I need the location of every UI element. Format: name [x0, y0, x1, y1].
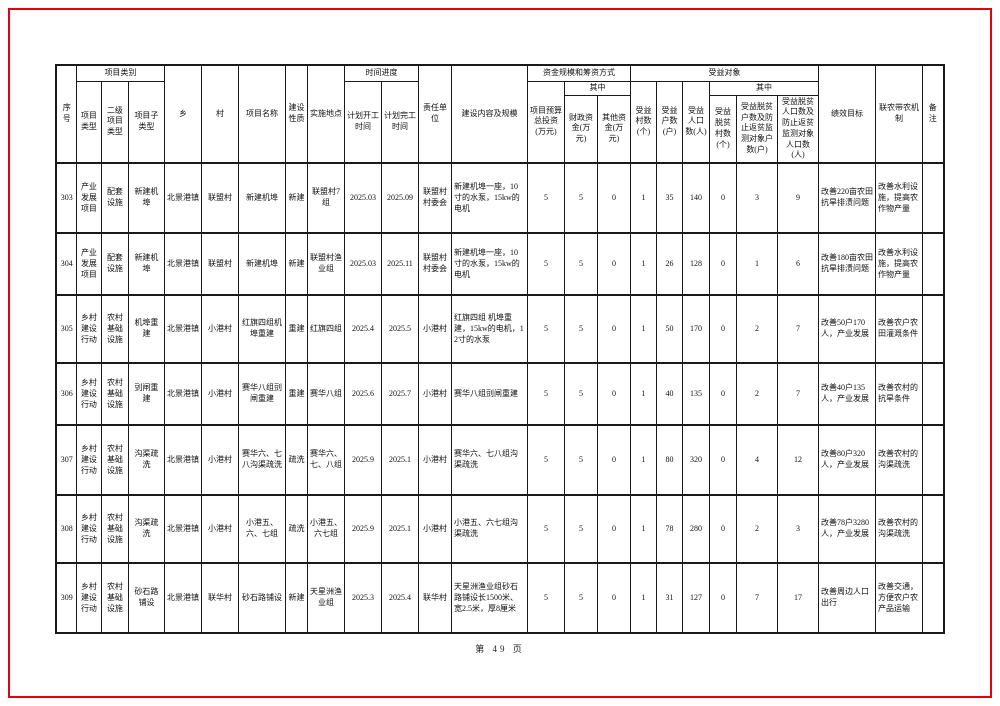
- table-cell: 北景港镇: [164, 425, 201, 495]
- table-cell: [923, 495, 944, 563]
- table-cell: 联盟村渔业组: [307, 233, 344, 295]
- table-cell: 304: [56, 233, 76, 295]
- table-cell: 5: [527, 425, 564, 495]
- table-cell: 2025.09: [381, 163, 418, 233]
- table-cell: 红旗四组 机埠重建，15kw的电机，12寸的水泵: [451, 295, 527, 363]
- header-poverty-villages: 受益脱贫村数(个): [709, 95, 736, 163]
- table-cell: 天星洲渔业组砂石路铺设长1500米、宽2.5米，厚8厘米: [451, 563, 527, 633]
- table-row: 305乡村建设行动农村基础设施机埠重建北景港镇小港村红旗四组机埠重建重建红旗四组…: [56, 295, 943, 363]
- table-cell: 5: [564, 363, 597, 425]
- header-fiscal-funds: 财政资金(万元): [564, 95, 597, 163]
- table-cell: 307: [56, 425, 76, 495]
- header-project-name: 项目名称: [238, 65, 285, 163]
- table-cell: [923, 295, 944, 363]
- table-cell: 128: [682, 233, 709, 295]
- table-cell: 小港村: [418, 363, 451, 425]
- table-cell: 农村基础设施: [101, 295, 128, 363]
- header-secondary-type: 二级项目类型: [101, 81, 128, 163]
- table-header: 序号 项目类别 乡 村 项目名称 建设性质 实施地点 时间进度 责任单位 建设内…: [56, 65, 943, 163]
- table-cell: 7: [777, 295, 818, 363]
- table-cell: 17: [777, 563, 818, 633]
- header-beneficiary-group: 受益对象: [630, 65, 818, 81]
- table-cell: 小港五、六七组: [307, 495, 344, 563]
- table-cell: 联华村: [201, 563, 238, 633]
- header-project-type: 项目类型: [76, 81, 101, 163]
- table-cell: 1: [630, 295, 656, 363]
- table-cell: 重建: [285, 363, 307, 425]
- header-other-funds: 其他资金(万元): [597, 95, 630, 163]
- table-cell: [923, 363, 944, 425]
- table-cell: 改善周边人口出行: [819, 563, 876, 633]
- table-cell: 改善80户320人，产业发展: [819, 425, 876, 495]
- header-location: 实施地点: [307, 65, 344, 163]
- table-cell: 乡村建设行动: [76, 563, 101, 633]
- table-cell: 5: [564, 563, 597, 633]
- table-cell: 3: [736, 163, 777, 233]
- table-cell: 乡村建设行动: [76, 495, 101, 563]
- table-cell: 80: [656, 425, 682, 495]
- table-cell: 1: [630, 495, 656, 563]
- table-cell: 2025.1: [381, 495, 418, 563]
- table-cell: 北景港镇: [164, 495, 201, 563]
- table-cell: 赛华八组: [307, 363, 344, 425]
- table-cell: 0: [709, 163, 736, 233]
- header-benefit-population: 受益人口数(人): [682, 81, 709, 163]
- table-cell: 改善农户农田灌溉条件: [876, 295, 923, 363]
- table-cell: 35: [656, 163, 682, 233]
- table-cell: 农村基础设施: [101, 563, 128, 633]
- table-cell: 7: [736, 563, 777, 633]
- table-cell: 7: [777, 363, 818, 425]
- table-cell: 0: [597, 363, 630, 425]
- table-row: 306乡村建设行动农村基础设施剅闸重建北景港镇小港村赛华八组剅闸重建重建赛华八组…: [56, 363, 943, 425]
- header-total-budget: 项目预算总投资(万元): [527, 81, 564, 163]
- table-cell: [923, 163, 944, 233]
- table-cell: 新建: [285, 163, 307, 233]
- table-cell: 5: [527, 295, 564, 363]
- header-township: 乡: [164, 65, 201, 163]
- table-cell: 0: [597, 233, 630, 295]
- table-cell: 5: [564, 425, 597, 495]
- table-cell: 305: [56, 295, 76, 363]
- table-cell: 0: [709, 295, 736, 363]
- table-cell: 北景港镇: [164, 163, 201, 233]
- table-cell: 2025.1: [381, 425, 418, 495]
- table-cell: 0: [597, 563, 630, 633]
- table-cell: 改善交通，方便农户农产品运输: [876, 563, 923, 633]
- table-cell: 砂石路铺设: [238, 563, 285, 633]
- table-cell: 改善农村的抗旱条件: [876, 363, 923, 425]
- table-cell: 2025.3: [344, 563, 381, 633]
- header-poverty-households: 受益脱贫户数及防止返贫监测对象户数(户): [736, 95, 777, 163]
- table-cell: 疏洗: [285, 425, 307, 495]
- table-cell: 1: [630, 233, 656, 295]
- table-cell: 5: [527, 563, 564, 633]
- table-cell: 联盟村: [201, 163, 238, 233]
- table-cell: [923, 425, 944, 495]
- header-project-category-group: 项目类别: [76, 65, 164, 81]
- table-cell: 改善农村的沟渠疏洗: [876, 495, 923, 563]
- header-planned-finish: 计划完工时间: [381, 81, 418, 163]
- header-funding-among-which: 其中: [564, 81, 630, 95]
- table-cell: 配套设施: [101, 163, 128, 233]
- table-cell: 小港村: [201, 425, 238, 495]
- header-time-progress-group: 时间进度: [344, 65, 418, 81]
- table-cell: 新建机埠: [128, 233, 164, 295]
- table-cell: 改善水利设施，提高农作物产量: [876, 233, 923, 295]
- table-cell: 0: [597, 163, 630, 233]
- table-cell: 2025.03: [344, 163, 381, 233]
- table-cell: 新建机埠一座，10寸的水泵，15kw的电机: [451, 233, 527, 295]
- table-cell: 2025.5: [381, 295, 418, 363]
- page-number: 第 49 页: [0, 642, 1000, 655]
- header-village: 村: [201, 65, 238, 163]
- table-cell: 0: [709, 495, 736, 563]
- header-benefit-households: 受益户数(户): [656, 81, 682, 163]
- table-cell: 小港村: [201, 295, 238, 363]
- table-cell: 5: [564, 495, 597, 563]
- table-cell: 小港村: [418, 425, 451, 495]
- table-cell: 1: [736, 233, 777, 295]
- project-schedule-table: 序号 项目类别 乡 村 项目名称 建设性质 实施地点 时间进度 责任单位 建设内…: [55, 64, 944, 634]
- table-cell: 红旗四组: [307, 295, 344, 363]
- table-cell: 2: [736, 495, 777, 563]
- table-cell: 新建机埠: [238, 233, 285, 295]
- table-cell: 小港村: [201, 495, 238, 563]
- table-cell: 红旗四组机埠重建: [238, 295, 285, 363]
- table-cell: 6: [777, 233, 818, 295]
- table-row: 304产业发展项目配套设施新建机埠北景港镇联盟村新建机埠新建联盟村渔业组2025…: [56, 233, 943, 295]
- table-cell: 改善78户3280人，产业发展: [819, 495, 876, 563]
- table-cell: 40: [656, 363, 682, 425]
- table-cell: 50: [656, 295, 682, 363]
- table-cell: 2025.4: [344, 295, 381, 363]
- table-cell: 新建: [285, 233, 307, 295]
- table-cell: 1: [630, 563, 656, 633]
- table-cell: 赛华六、七、八组: [307, 425, 344, 495]
- table-cell: 2025.03: [344, 233, 381, 295]
- table-cell: 小港村: [418, 295, 451, 363]
- table-cell: 改善180亩农田抗旱排渍问题: [819, 233, 876, 295]
- table-cell: 疏洗: [285, 495, 307, 563]
- table-cell: 新建机埠一座，10寸的水泵，15kw的电机: [451, 163, 527, 233]
- table-cell: 5: [527, 363, 564, 425]
- table-cell: 天星洲渔业组: [307, 563, 344, 633]
- table-cell: 5: [564, 295, 597, 363]
- table-cell: 1: [630, 425, 656, 495]
- table-cell: 小港五、六、七组: [238, 495, 285, 563]
- table-row: 309乡村建设行动农村基础设施砂石路铺设北景港镇联华村砂石路铺设新建天星洲渔业组…: [56, 563, 943, 633]
- table-cell: 303: [56, 163, 76, 233]
- table-cell: 砂石路铺设: [128, 563, 164, 633]
- table-cell: 新建: [285, 563, 307, 633]
- table-cell: 0: [709, 425, 736, 495]
- table-cell: 31: [656, 563, 682, 633]
- header-content-scale: 建设内容及规模: [451, 65, 527, 163]
- table-cell: 乡村建设行动: [76, 295, 101, 363]
- header-remarks: 备注: [923, 65, 944, 163]
- table-cell: 2025.9: [344, 425, 381, 495]
- table-cell: 320: [682, 425, 709, 495]
- table-cell: 联盟村村委会: [418, 233, 451, 295]
- table-cell: 北景港镇: [164, 233, 201, 295]
- table-cell: 赛华六、七八组沟渠疏洗: [451, 425, 527, 495]
- table-cell: 0: [597, 295, 630, 363]
- table-cell: 产业发展项目: [76, 163, 101, 233]
- table-cell: 沟渠疏洗: [128, 425, 164, 495]
- header-planned-start: 计划开工时间: [344, 81, 381, 163]
- table-cell: 赛华八组剅闸重建: [451, 363, 527, 425]
- table-cell: 5: [527, 233, 564, 295]
- table-cell: 2025.7: [381, 363, 418, 425]
- table-cell: 4: [736, 425, 777, 495]
- table-cell: 309: [56, 563, 76, 633]
- table-cell: 改善40户135人，产业发展: [819, 363, 876, 425]
- table-cell: 新建机埠: [238, 163, 285, 233]
- table-cell: 306: [56, 363, 76, 425]
- table-cell: 0: [709, 563, 736, 633]
- table-cell: 改善220亩农田抗旱排渍问题: [819, 163, 876, 233]
- header-benefit-villages: 受益村数(个): [630, 81, 656, 163]
- table-cell: 小港五、六七组沟渠疏洗: [451, 495, 527, 563]
- table-cell: 北景港镇: [164, 295, 201, 363]
- table-cell: 26: [656, 233, 682, 295]
- table-cell: 2025.6: [344, 363, 381, 425]
- table-cell: 140: [682, 163, 709, 233]
- table-container: 序号 项目类别 乡 村 项目名称 建设性质 实施地点 时间进度 责任单位 建设内…: [0, 64, 1000, 634]
- table-cell: 170: [682, 295, 709, 363]
- table-cell: 78: [656, 495, 682, 563]
- table-cell: 配套设施: [101, 233, 128, 295]
- table-cell: 农村基础设施: [101, 495, 128, 563]
- table-cell: 0: [709, 233, 736, 295]
- table-cell: 308: [56, 495, 76, 563]
- table-row: 303产业发展项目配套设施新建机埠北景港镇联盟村新建机埠新建联盟村7组2025.…: [56, 163, 943, 233]
- table-cell: 0: [597, 425, 630, 495]
- table-cell: 2: [736, 363, 777, 425]
- table-cell: 2025.9: [344, 495, 381, 563]
- table-cell: 新建机埠: [128, 163, 164, 233]
- table-cell: 农村基础设施: [101, 425, 128, 495]
- table-cell: 2025.11: [381, 233, 418, 295]
- table-cell: 联华村: [418, 563, 451, 633]
- header-poverty-population: 受益脱贫人口数及防止返贫监测对象人口数(人): [777, 95, 818, 163]
- table-cell: 5: [527, 163, 564, 233]
- header-responsible-unit: 责任单位: [418, 65, 451, 163]
- table-cell: [923, 563, 944, 633]
- table-cell: 改善50户170人，产业发展: [819, 295, 876, 363]
- table-cell: 280: [682, 495, 709, 563]
- table-cell: 小港村: [201, 363, 238, 425]
- table-cell: 0: [597, 495, 630, 563]
- table-cell: 5: [564, 233, 597, 295]
- table-cell: 北景港镇: [164, 563, 201, 633]
- table-cell: 赛华六、七八沟渠疏洗: [238, 425, 285, 495]
- table-cell: 0: [709, 363, 736, 425]
- table-cell: 机埠重建: [128, 295, 164, 363]
- table-cell: 赛华八组剅闸重建: [238, 363, 285, 425]
- header-serial: 序号: [56, 65, 76, 163]
- header-funding-group: 资金规模和筹资方式: [527, 65, 630, 81]
- header-construction-nature: 建设性质: [285, 65, 307, 163]
- table-cell: 12: [777, 425, 818, 495]
- table-cell: 2: [736, 295, 777, 363]
- table-cell: 127: [682, 563, 709, 633]
- table-cell: 9: [777, 163, 818, 233]
- table-cell: 联盟村村委会: [418, 163, 451, 233]
- table-cell: 5: [564, 163, 597, 233]
- table-cell: 乡村建设行动: [76, 425, 101, 495]
- table-cell: 3: [777, 495, 818, 563]
- table-cell: 5: [527, 495, 564, 563]
- table-cell: 1: [630, 163, 656, 233]
- table-cell: 重建: [285, 295, 307, 363]
- table-cell: 联盟村: [201, 233, 238, 295]
- header-sub-type: 项目子类型: [128, 81, 164, 163]
- table-cell: 联盟村7组: [307, 163, 344, 233]
- table-cell: 北景港镇: [164, 363, 201, 425]
- table-cell: 小港村: [418, 495, 451, 563]
- table-cell: 农村基础设施: [101, 363, 128, 425]
- table-cell: 乡村建设行动: [76, 363, 101, 425]
- header-performance-goal: 绩效目标: [819, 65, 876, 163]
- table-cell: 135: [682, 363, 709, 425]
- table-body: 303产业发展项目配套设施新建机埠北景港镇联盟村新建机埠新建联盟村7组2025.…: [56, 163, 943, 633]
- table-cell: [923, 233, 944, 295]
- table-row: 307乡村建设行动农村基础设施沟渠疏洗北景港镇小港村赛华六、七八沟渠疏洗疏洗赛华…: [56, 425, 943, 495]
- table-cell: 改善水利设施，提高农作物产量: [876, 163, 923, 233]
- table-cell: 产业发展项目: [76, 233, 101, 295]
- table-cell: 改善农村的沟渠疏洗: [876, 425, 923, 495]
- table-row: 308乡村建设行动农村基础设施沟渠疏洗北景港镇小港村小港五、六、七组疏洗小港五、…: [56, 495, 943, 563]
- header-beneficiary-among-which: 其中: [709, 81, 818, 95]
- table-cell: 沟渠疏洗: [128, 495, 164, 563]
- table-cell: 1: [630, 363, 656, 425]
- table-cell: 2025.4: [381, 563, 418, 633]
- header-farmer-link-mechanism: 联农带农机制: [876, 65, 923, 163]
- table-cell: 剅闸重建: [128, 363, 164, 425]
